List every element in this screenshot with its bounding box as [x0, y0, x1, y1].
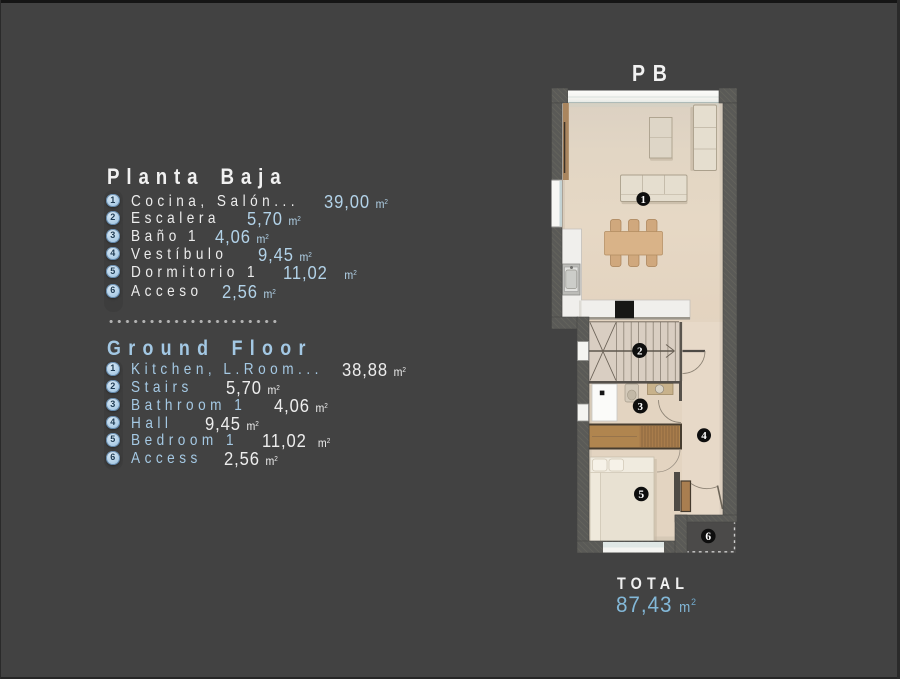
svg-text:5: 5 [638, 489, 644, 501]
svg-text:1: 1 [641, 194, 647, 206]
svg-text:4: 4 [701, 430, 707, 442]
svg-text:3: 3 [638, 401, 644, 413]
svg-text:6: 6 [705, 531, 711, 543]
svg-text:2: 2 [637, 345, 643, 357]
